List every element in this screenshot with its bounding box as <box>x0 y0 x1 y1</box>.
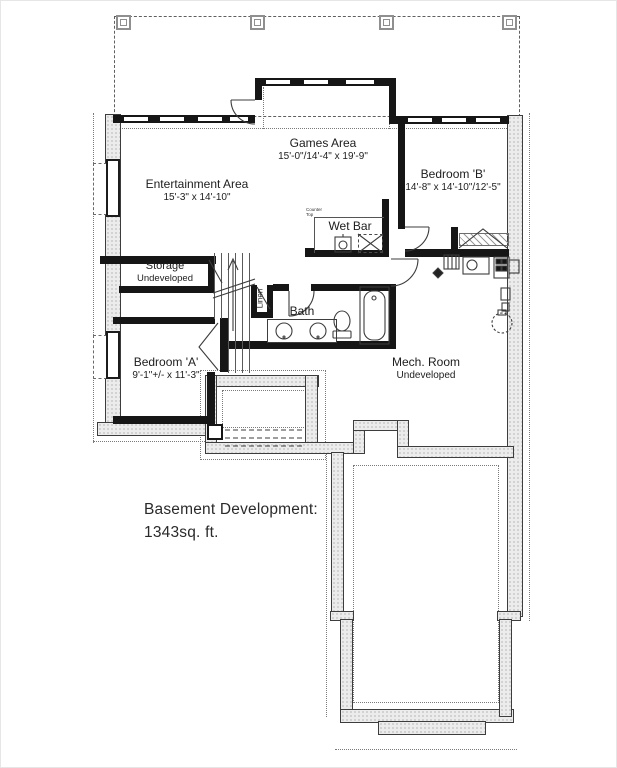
furnace-icon <box>444 255 459 269</box>
symbols-overlay <box>1 1 617 768</box>
door-storage <box>209 260 222 283</box>
door-arc-mech-room <box>391 259 418 286</box>
wet-bar-sink-icon <box>335 234 351 252</box>
plan-summary-line2: 1343sq. ft. <box>144 521 318 544</box>
electrical-panel-icon <box>494 257 519 278</box>
appliance-x-icon <box>358 234 383 253</box>
room-label-bath: Bath <box>290 304 315 319</box>
water-heater-icon <box>492 310 512 333</box>
room-label-bedroom-b: Bedroom 'B' 14'-8" x 14'-10"/12'-5" <box>405 167 500 194</box>
wet-bar-counter-note: Counter Top <box>306 207 328 217</box>
closet-bifold-icon <box>459 229 507 248</box>
room-label-linen: Linen <box>256 282 265 316</box>
vanity-sink-icon <box>276 323 326 339</box>
room-label-mech: Mech. Room Undeveloped <box>392 355 460 382</box>
bathtub-icon <box>360 287 389 344</box>
room-label-wet-bar: Wet Bar <box>328 219 371 234</box>
stair-arrow-icon <box>213 259 255 331</box>
beam-dashed-lines <box>225 430 305 446</box>
utility-meter-icon <box>501 288 510 311</box>
room-label-bedroom-a: Bedroom 'A' 9'-1"+/- x 11'-3" <box>132 355 199 382</box>
toilet-icon <box>333 311 351 338</box>
door-arc-bedroom-b <box>405 227 429 251</box>
plan-summary-line1: Basement Development: <box>144 498 318 521</box>
room-label-storage: Storage Undeveloped <box>137 260 193 285</box>
door-arc-games <box>231 100 255 124</box>
door-bedroom-a <box>199 323 218 370</box>
plan-summary: Basement Development: 1343sq. ft. <box>144 498 318 544</box>
basement-floor-plan: Games Area 15'-0"/14'-4" x 19'-9" Entert… <box>0 0 617 768</box>
room-label-games: Games Area 15'-0"/14'-4" x 19'-9" <box>278 136 368 163</box>
hrv-icon <box>463 257 489 274</box>
floor-drain-icon <box>433 268 443 278</box>
room-label-entertainment: Entertainment Area 15'-3" x 14'-10" <box>146 177 249 204</box>
